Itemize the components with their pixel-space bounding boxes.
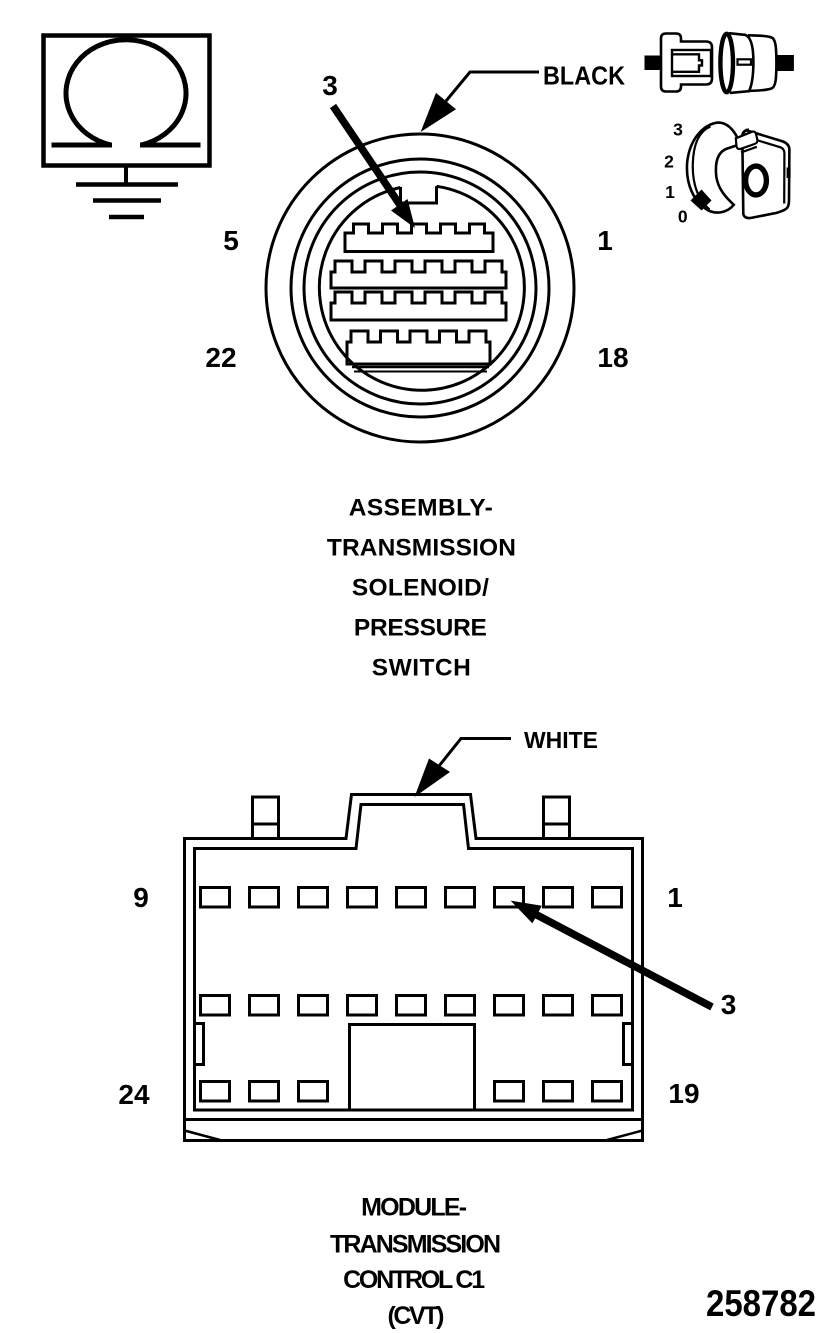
svg-text:1: 1 [667, 882, 683, 913]
svg-text:1: 1 [597, 225, 613, 256]
svg-text:WHITE: WHITE [524, 727, 598, 753]
svg-text:22: 22 [205, 342, 236, 373]
svg-text:MODULE-: MODULE- [361, 1194, 467, 1222]
svg-text:1: 1 [665, 182, 675, 202]
svg-text:3: 3 [322, 70, 338, 101]
svg-text:18: 18 [597, 342, 628, 373]
svg-text:0: 0 [678, 206, 688, 226]
svg-text:PRESSURE: PRESSURE [354, 615, 487, 642]
svg-text:19: 19 [668, 1078, 699, 1109]
svg-text:3: 3 [721, 989, 737, 1020]
svg-text:TRANSMISSION: TRANSMISSION [330, 1231, 501, 1259]
svg-text:9: 9 [133, 882, 149, 913]
svg-text:SOLENOID/: SOLENOID/ [352, 575, 489, 602]
svg-text:3: 3 [673, 120, 683, 140]
svg-text:ASSEMBLY-: ASSEMBLY- [349, 495, 493, 522]
svg-text:BLACK: BLACK [543, 61, 625, 91]
svg-text:CONTROL C1: CONTROL C1 [343, 1266, 485, 1294]
svg-text:5: 5 [223, 225, 239, 256]
svg-text:24: 24 [118, 1079, 150, 1110]
svg-text:2: 2 [664, 152, 674, 172]
svg-text:258782: 258782 [706, 1283, 816, 1324]
svg-text:(CVT): (CVT) [388, 1302, 445, 1330]
svg-text:SWITCH: SWITCH [372, 655, 471, 682]
svg-text:TRANSMISSION: TRANSMISSION [327, 535, 516, 562]
